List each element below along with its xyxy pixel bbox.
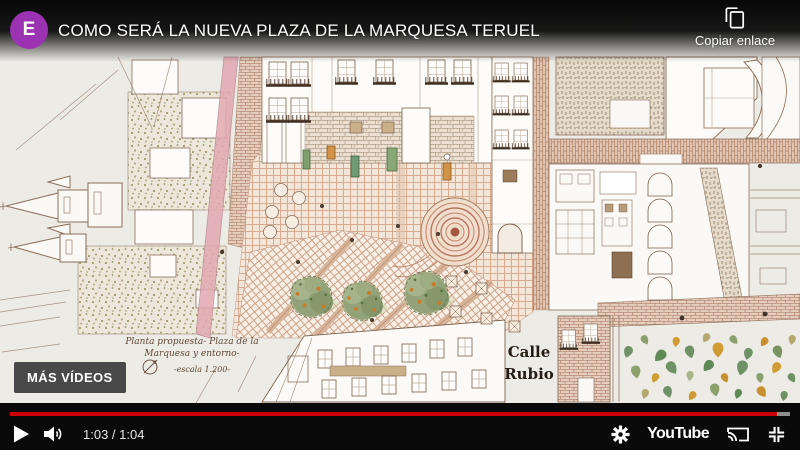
channel-avatar[interactable]: E bbox=[10, 11, 48, 49]
more-videos-button[interactable]: MÁS VÍDEOS bbox=[14, 362, 126, 393]
progress-bar[interactable] bbox=[10, 412, 790, 416]
play-icon bbox=[14, 425, 29, 443]
cast-icon bbox=[726, 425, 750, 443]
video-title[interactable]: COMO SERÁ LA NUEVA PLAZA DE LA MARQUESA … bbox=[58, 21, 540, 41]
paving-strip bbox=[396, 163, 405, 255]
volume-icon bbox=[44, 426, 66, 442]
street-name-line1: Calle bbox=[508, 343, 551, 361]
time-display: 1:03 / 1:04 bbox=[83, 427, 144, 442]
left-controls: 1:03 / 1:04 bbox=[14, 425, 144, 443]
settings-button[interactable] bbox=[611, 425, 630, 444]
site-plan-drawing: Planta propuesta- Plaza de la Marquesa y… bbox=[0, 0, 800, 404]
play-button[interactable] bbox=[14, 425, 29, 443]
upper-facades bbox=[262, 57, 492, 163]
top-bar: E COMO SERÁ LA NUEVA PLAZA DE LA MARQUES… bbox=[0, 0, 670, 56]
channel-initial: E bbox=[23, 19, 36, 41]
volume-button[interactable] bbox=[44, 426, 66, 442]
progress-played bbox=[10, 412, 777, 416]
duration: 1:04 bbox=[119, 427, 144, 442]
controls-row: 1:03 / 1:04 bbox=[0, 418, 800, 450]
copy-link-label: Copiar enlace bbox=[695, 33, 775, 48]
plan-title-line1: Planta propuesta- Plaza de la bbox=[124, 337, 258, 347]
street-name-line2: Rubio bbox=[504, 365, 554, 383]
fullscreen-icon bbox=[767, 425, 786, 444]
player-controls: 1:03 / 1:04 bbox=[0, 403, 800, 450]
right-controls: YouTube bbox=[611, 425, 786, 444]
cast-button[interactable] bbox=[726, 425, 750, 443]
youtube-logo[interactable]: YouTube bbox=[647, 425, 709, 443]
plan-scale-label: -escala 1.200- bbox=[174, 365, 231, 374]
plan-title-line2: Marquesa y entorno- bbox=[143, 349, 239, 359]
corner-house bbox=[492, 57, 533, 253]
video-content[interactable]: Planta propuesta- Plaza de la Marquesa y… bbox=[0, 0, 800, 404]
copy-link-button[interactable]: Copiar enlace bbox=[680, 7, 790, 48]
gear-icon bbox=[611, 425, 630, 444]
current-time: 1:03 bbox=[83, 427, 108, 442]
time-separator: / bbox=[108, 427, 119, 442]
fullscreen-button[interactable] bbox=[767, 425, 786, 444]
copy-icon bbox=[725, 7, 745, 29]
youtube-player: Planta propuesta- Plaza de la Marquesa y… bbox=[0, 0, 800, 450]
